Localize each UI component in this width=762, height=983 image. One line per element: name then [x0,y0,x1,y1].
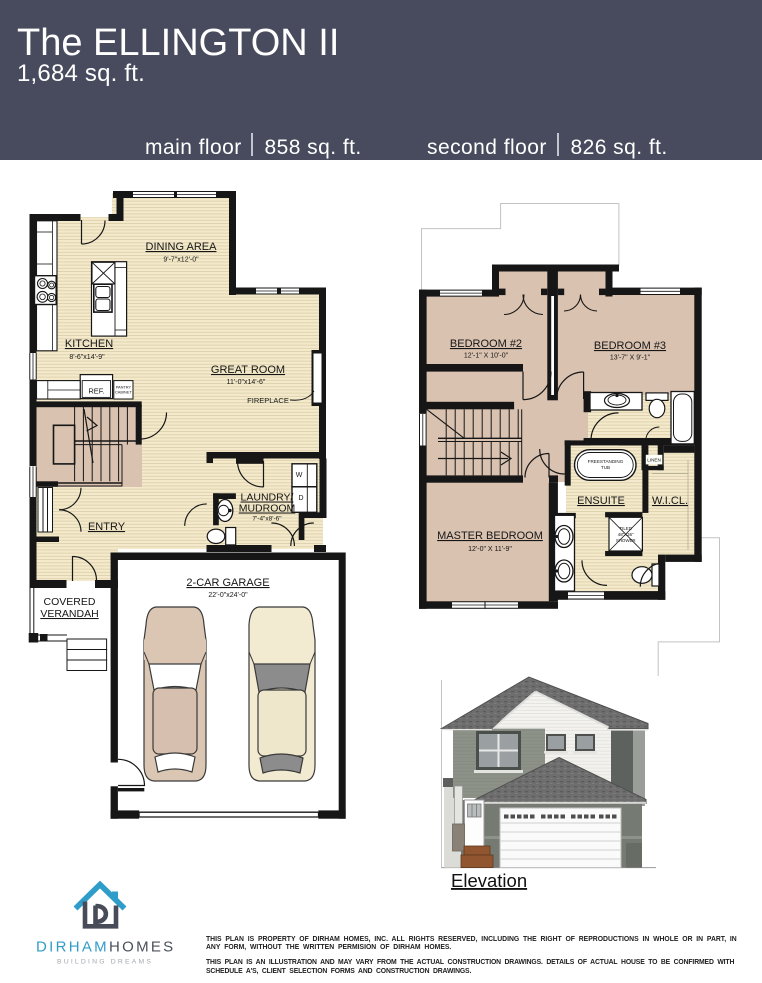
svg-text:DINING AREA: DINING AREA [146,241,218,253]
svg-text:TILED: TILED [619,526,631,531]
svg-text:BUILDING DREAMS: BUILDING DREAMS [57,959,153,966]
svg-text:FIREPLACE: FIREPLACE [247,396,289,405]
svg-text:LINEN: LINEN [647,458,661,463]
svg-text:11'-0"x14'-6": 11'-0"x14'-6" [227,379,266,386]
svg-text:GREAT ROOM: GREAT ROOM [211,364,285,376]
svg-text:VERANDAH: VERANDAH [40,608,98,620]
svg-text:48"X36": 48"X36" [618,532,634,537]
svg-text:W: W [296,472,303,479]
svg-text:W.I.CL.: W.I.CL. [652,495,688,507]
svg-text:9'-7"x12'-0": 9'-7"x12'-0" [163,257,199,264]
svg-text:TUB: TUB [601,465,610,470]
svg-text:ENTRY: ENTRY [88,521,126,533]
svg-text:13'-7" X 9'-1": 13'-7" X 9'-1" [610,355,651,362]
svg-text:CABINET: CABINET [115,390,132,395]
svg-text:12'-0" X 11'-9": 12'-0" X 11'-9" [468,546,512,553]
svg-text:D: D [298,495,303,502]
svg-text:22'-0"x24'-0": 22'-0"x24'-0" [208,592,248,599]
svg-text:BEDROOM #3: BEDROOM #3 [594,340,666,352]
svg-text:KITCHEN: KITCHEN [65,338,113,350]
svg-text:MUDROOM: MUDROOM [239,503,296,515]
svg-text:FREESTANDING: FREESTANDING [588,459,624,464]
svg-text:COVERED: COVERED [44,596,96,608]
svg-text:7'-4"x8'-6": 7'-4"x8'-6" [252,516,282,523]
svg-text:ENSUITE: ENSUITE [577,495,625,507]
svg-text:DIRHAMHOMES: DIRHAMHOMES [36,939,175,956]
svg-text:12'-1" X 10'-0": 12'-1" X 10'-0" [464,353,509,360]
svg-text:SHOWER: SHOWER [616,538,636,543]
svg-text:2-CAR GARAGE: 2-CAR GARAGE [186,577,269,589]
svg-text:BEDROOM #2: BEDROOM #2 [450,338,522,350]
svg-text:REF.: REF. [88,387,104,396]
svg-text:MASTER BEDROOM: MASTER BEDROOM [437,530,543,542]
svg-text:8'-6"x14'-9": 8'-6"x14'-9" [69,354,105,361]
svg-text:Elevation: Elevation [451,870,527,891]
